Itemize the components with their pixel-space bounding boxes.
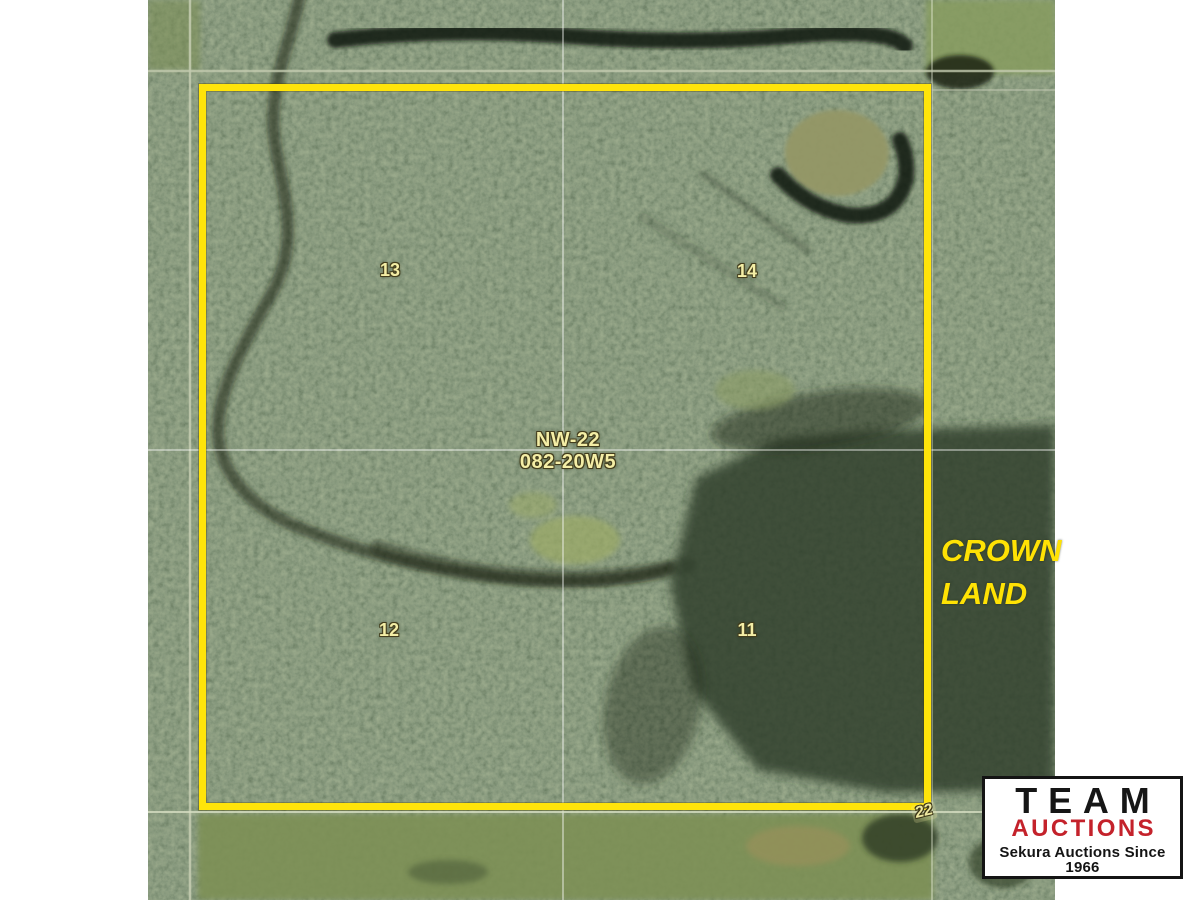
field-bare-patch	[746, 826, 850, 866]
quarter-label-11: 11	[737, 621, 756, 639]
field-trees-3	[408, 860, 488, 884]
team-auctions-logo: TEAM AUCTIONS Sekura Auctions Since 1966	[982, 776, 1183, 879]
field-top-left	[148, 0, 200, 70]
legal-description-label: NW-22 082-20W5	[520, 429, 616, 473]
crown-land-line-1: CROWN	[941, 529, 1062, 572]
quarter-label-12: 12	[379, 621, 399, 639]
crown-land-line-2: LAND	[941, 572, 1062, 615]
auction-map-page: 13 14 12 11 NW-22 082-20W5 22 CROWN LAND…	[0, 0, 1200, 900]
crown-land-label: CROWN LAND	[941, 529, 1062, 615]
field-trees-1	[862, 814, 938, 862]
legal-line-2: 082-20W5	[520, 451, 616, 473]
quarter-label-14: 14	[737, 262, 757, 280]
logo-team-text: TEAM	[985, 783, 1180, 819]
logo-auctions-text: AUCTIONS	[985, 817, 1180, 841]
quarter-label-13: 13	[380, 261, 400, 279]
logo-tagline: Sekura Auctions Since 1966	[985, 845, 1180, 875]
legal-line-1: NW-22	[520, 429, 616, 451]
